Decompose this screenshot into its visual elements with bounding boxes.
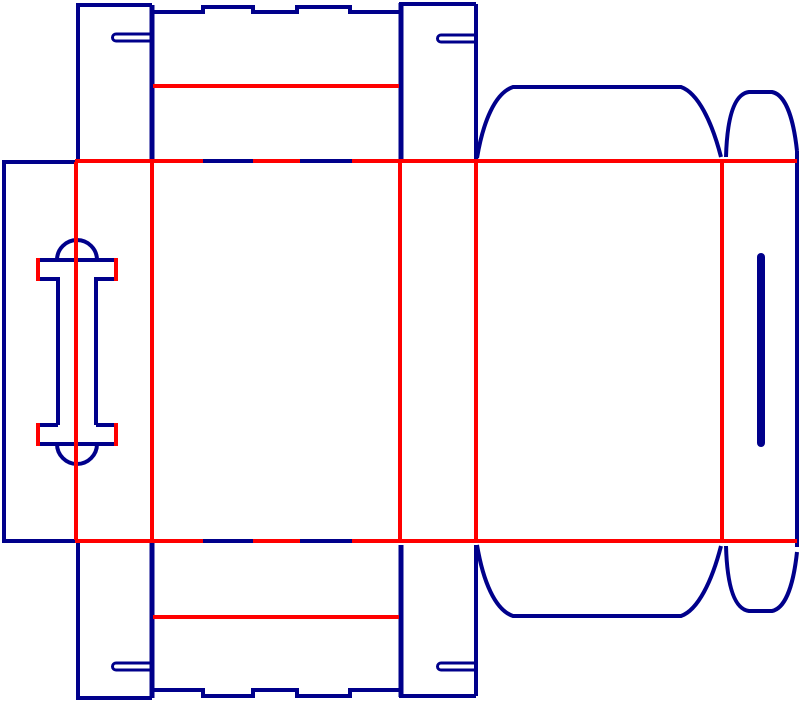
dieline-canvas (0, 0, 800, 704)
bottom-flap-a-slot (113, 663, 151, 670)
top-right-tab-outline (726, 92, 797, 157)
bottom-flap-b-slot (438, 663, 476, 670)
bottom-dust-flap-outline (477, 545, 721, 616)
top-flap-b-slot (438, 35, 476, 42)
bottom-lid-outer-edge (152, 690, 401, 696)
top-dust-flap-outline (477, 87, 721, 158)
top-flap-a-slot (113, 34, 151, 41)
bottom-right-tab-outline (726, 546, 797, 611)
dieline-svg (0, 0, 800, 704)
top-lid-outer-edge (152, 7, 401, 12)
